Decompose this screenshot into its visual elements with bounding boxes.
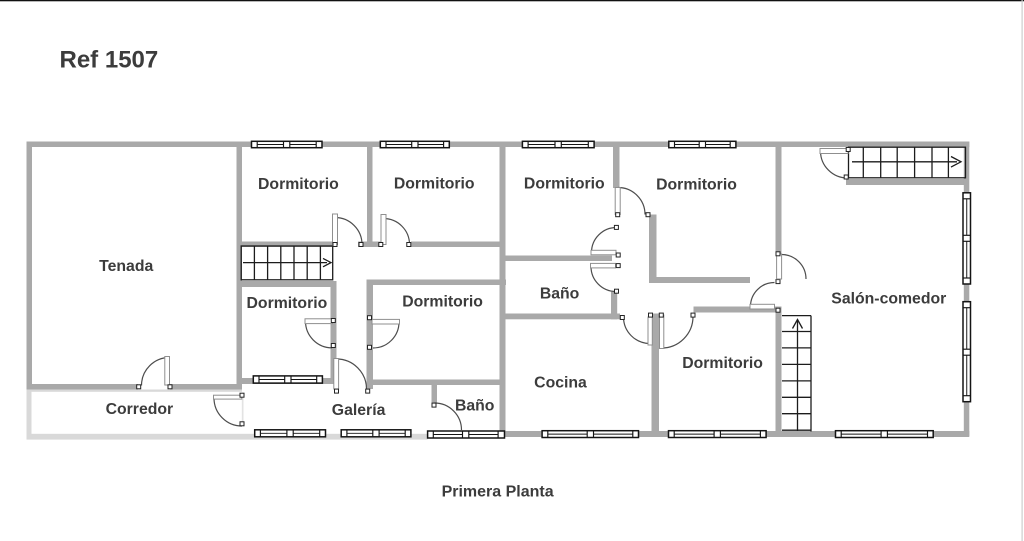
svg-text:Dormitorio: Dormitorio (524, 176, 605, 193)
svg-text:Baño: Baño (455, 397, 495, 414)
svg-text:Dormitorio: Dormitorio (247, 295, 328, 312)
svg-text:Galería: Galería (332, 402, 386, 419)
svg-text:Primera Planta: Primera Planta (442, 483, 554, 500)
svg-text:Tenada: Tenada (99, 258, 153, 275)
svg-text:Cocina: Cocina (534, 375, 587, 392)
svg-text:Dormitorio: Dormitorio (394, 175, 475, 192)
svg-text:Dormitorio: Dormitorio (258, 176, 339, 193)
svg-text:Dormitorio: Dormitorio (656, 176, 737, 193)
svg-text:Dormitorio: Dormitorio (402, 294, 483, 311)
svg-text:Corredor: Corredor (106, 401, 174, 418)
svg-text:Ref 1507: Ref 1507 (60, 47, 159, 74)
svg-text:Baño: Baño (540, 286, 580, 303)
svg-text:Dormitorio: Dormitorio (682, 355, 763, 372)
svg-text:Salón-comedor: Salón-comedor (831, 290, 946, 307)
